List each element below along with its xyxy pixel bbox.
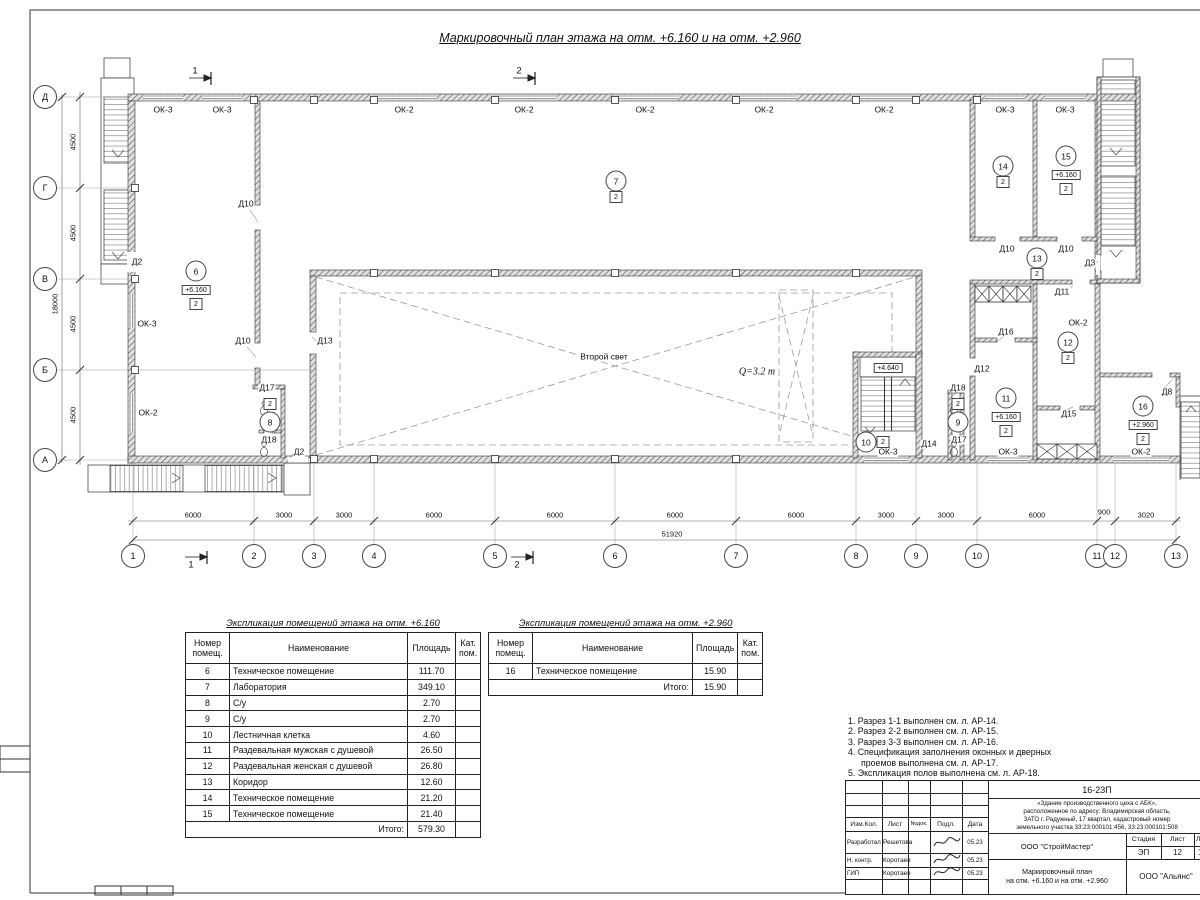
room-category: 2 <box>877 436 890 448</box>
titleblock-line <box>846 817 988 818</box>
signature <box>932 853 962 867</box>
table-cell: Техническое помещение <box>533 664 693 680</box>
table-cell: 13 <box>186 774 230 790</box>
room-number-7: 7 <box>606 171 627 192</box>
note-line: 3. Разрез 3-3 выполнен см. л. АР-16. <box>848 737 1051 747</box>
table-cell: С/у <box>230 695 408 711</box>
table-row: 16Техническое помещение15.90 <box>489 664 763 680</box>
window-label: ОК-3 <box>211 106 232 115</box>
notes-list: 1. Разрез 1-1 выполнен см. л. АР-14.2. Р… <box>848 716 1051 778</box>
dim-label: 3000 <box>938 511 955 520</box>
window-label: ОК-2 <box>393 106 414 115</box>
window-label: ОК-3 <box>994 106 1015 115</box>
dim-label: 900 <box>1098 508 1111 517</box>
note-line: проемов выполнена см. л. АР-17. <box>848 758 1051 768</box>
door-label: Д14 <box>920 440 937 449</box>
axis-number-8: 8 <box>844 544 868 568</box>
table-cell: Лестничная клетка <box>230 727 408 743</box>
table-row: 8С/у2.70 <box>186 695 481 711</box>
room-number-10: 10 <box>856 432 877 453</box>
window-label: ОК-2 <box>513 106 534 115</box>
room-category: 2 <box>1031 268 1044 280</box>
doc-number: 16-23П <box>988 781 1200 798</box>
sheet-title-line1: Маркировочный план <box>1022 868 1092 877</box>
table-row: 12Раздевальная женская с душевой26.80 <box>186 758 481 774</box>
room-schedule-6160: Экспликация помещений этажа на отм. +6.1… <box>185 618 481 838</box>
room-elevation: +6.160 <box>992 412 1021 422</box>
total-row: Итого:579.30 <box>186 821 481 837</box>
sheets-label: Листов <box>1196 833 1200 846</box>
door-label: Д17 <box>258 384 275 393</box>
titleblock-line <box>846 831 988 832</box>
table-cell: 26.80 <box>408 758 456 774</box>
section-mark: 1 <box>192 66 197 77</box>
table-cell: 2.70 <box>408 695 456 711</box>
axis-letter-Б: Б <box>33 358 57 382</box>
axis-number-3: 3 <box>302 544 326 568</box>
window-label: ОК-3 <box>152 106 173 115</box>
window-label: ОК-3 <box>1054 106 1075 115</box>
column-header: Кат. пом. <box>456 633 481 664</box>
door-label: Д10 <box>234 337 251 346</box>
table-cell <box>456 727 481 743</box>
table-row: 14Техническое помещение21.20 <box>186 790 481 806</box>
table-cell: Лаборатория <box>230 679 408 695</box>
titleblock-line <box>846 879 988 880</box>
window-label: ОК-3 <box>997 448 1018 457</box>
sheet-title-line2: на отм. +6.160 и на отм. +2.960 <box>1006 877 1108 886</box>
drawing-title: Маркировочный план этажа на отм. +6.160 … <box>439 31 801 45</box>
door-label: Д15 <box>1060 410 1077 419</box>
axis-number-9: 9 <box>904 544 928 568</box>
room-schedule-table: Номер помещ.НаименованиеПлощадьКат. пом.… <box>488 632 763 696</box>
signature <box>932 835 962 851</box>
plan-annotation: +4.640 <box>874 363 903 373</box>
titleblock-line <box>962 781 963 894</box>
table-cell <box>456 695 481 711</box>
total-row: Итого:15.90 <box>489 679 763 695</box>
axis-number-7: 7 <box>724 544 748 568</box>
sign-role: Разработал <box>847 831 882 853</box>
axis-number-2: 2 <box>242 544 266 568</box>
axis-number-13: 13 <box>1164 544 1188 568</box>
room-category: 2 <box>1060 183 1073 195</box>
axis-number-1: 1 <box>121 544 145 568</box>
door-label: Д16 <box>997 328 1014 337</box>
door-label: Д3 <box>1084 259 1096 268</box>
table-cell: 21.20 <box>408 790 456 806</box>
door-label: Д18 <box>260 436 277 445</box>
table-row: 11Раздевальная мужская с душевой26.50 <box>186 742 481 758</box>
dim-label: 4500 <box>69 407 78 424</box>
table-cell: 11 <box>186 742 230 758</box>
column-header: Площадь <box>408 633 456 664</box>
column-header: Наименование <box>533 633 693 664</box>
room-number-9: 9 <box>948 412 969 433</box>
col-list: Лист <box>882 817 908 831</box>
door-label: Д2 <box>293 448 305 457</box>
room-category: 2 <box>1062 352 1075 364</box>
table-cell: 6 <box>186 664 230 680</box>
table-cell <box>456 711 481 727</box>
dim-label: 3020 <box>1138 511 1155 520</box>
void-dashed-lines <box>316 277 915 455</box>
table-row: 9С/у2.70 <box>186 711 481 727</box>
axis-number-5: 5 <box>483 544 507 568</box>
axis-number-4: 4 <box>362 544 386 568</box>
axis-number-6: 6 <box>603 544 627 568</box>
total-label: Итого: <box>186 821 408 837</box>
door-label: Д8 <box>1161 388 1173 397</box>
titleblock-line <box>846 853 988 854</box>
table-title: Экспликация помещений этажа на отм. +2.9… <box>488 618 763 629</box>
total-value: 15.90 <box>693 679 738 695</box>
sign-date: 05.23 <box>962 831 988 853</box>
window-label: ОК-2 <box>137 409 158 418</box>
room-elevation: +2.960 <box>1129 420 1158 430</box>
column-header: Кат. пом. <box>738 633 763 664</box>
axis-letter-Г: Г <box>33 176 57 200</box>
col-data: Дата <box>962 817 988 831</box>
room-category: 2 <box>952 398 965 410</box>
sign-date: 05.23 <box>962 867 988 879</box>
axis-letter-Д: Д <box>33 85 57 109</box>
dim-label: 3000 <box>336 511 353 520</box>
object-description: «Здание производственного цеха с АБК», р… <box>988 798 1200 833</box>
column-header: Номер помещ. <box>489 633 533 664</box>
section-mark: 2 <box>514 560 519 571</box>
axis-number-12: 12 <box>1103 544 1127 568</box>
door-label: Д18 <box>949 384 966 393</box>
stage-value: ЭП <box>1126 846 1161 859</box>
room-number-8: 8 <box>260 412 281 433</box>
table-cell: Коридор <box>230 774 408 790</box>
dim-label: 6000 <box>426 511 443 520</box>
door-label: Д10 <box>998 245 1015 254</box>
dim-label: 4500 <box>69 134 78 151</box>
dim-label: 6000 <box>667 511 684 520</box>
table-cell: 9 <box>186 711 230 727</box>
room-category: 2 <box>1137 433 1150 445</box>
table-cell: С/у <box>230 711 408 727</box>
table-cell <box>456 664 481 680</box>
org-name: ООО "СтройМастер" <box>988 833 1126 859</box>
sheet-value: 12 <box>1161 846 1194 859</box>
window-label: ОК-3 <box>877 448 898 457</box>
sign-role: Н. контр. <box>847 853 882 867</box>
table-cell: 26.50 <box>408 742 456 758</box>
room-category: 2 <box>997 176 1010 188</box>
table-cell: 10 <box>186 727 230 743</box>
axis-letter-А: А <box>33 448 57 472</box>
dim-label: 3000 <box>878 511 895 520</box>
door-label: Д17 <box>950 436 967 445</box>
table-cell: Техническое помещение <box>230 806 408 822</box>
sign-name: Решетова <box>883 831 929 853</box>
door-label: Д12 <box>973 365 990 374</box>
table-cell: 349.10 <box>408 679 456 695</box>
table-cell: 14 <box>186 790 230 806</box>
room-number-11: 11 <box>996 388 1017 409</box>
window-label: ОК-2 <box>1067 319 1088 328</box>
room-elevation: +6.160 <box>182 285 211 295</box>
titleblock-line <box>1126 846 1200 847</box>
section-mark: 1 <box>188 560 193 571</box>
dim-label: 4500 <box>69 225 78 242</box>
col-podl: Подл. <box>930 817 962 831</box>
table-cell: 21.40 <box>408 806 456 822</box>
window-label: ОК-2 <box>1130 448 1151 457</box>
room-number-14: 14 <box>993 156 1014 177</box>
table-cell <box>738 664 763 680</box>
room-category: 2 <box>190 298 203 310</box>
note-line: 5. Экспликация полов выполнена см. л. АР… <box>848 768 1051 778</box>
table-cell <box>456 742 481 758</box>
table-row: 15Техническое помещение21.40 <box>186 806 481 822</box>
section-mark: 2 <box>516 66 521 77</box>
dim-label: 4500 <box>69 316 78 333</box>
sign-date: 05.23 <box>962 853 988 867</box>
table-cell <box>456 790 481 806</box>
title-block: 16-23П «Здание производственного цеха с … <box>845 780 1200 895</box>
room-schedule-table: Номер помещ.НаименованиеПлощадьКат. пом.… <box>185 632 481 838</box>
note-line: 2. Разрез 2-2 выполнен см. л. АР-15. <box>848 726 1051 736</box>
table-row: 13Коридор12.60 <box>186 774 481 790</box>
dim-label: 6000 <box>1029 511 1046 520</box>
dim-label: 6000 <box>547 511 564 520</box>
table-row: 10Лестничная клетка4.60 <box>186 727 481 743</box>
room-schedule-2960: Экспликация помещений этажа на отм. +2.9… <box>488 618 763 696</box>
stage-label: Стадия <box>1126 833 1161 846</box>
window-label: ОК-2 <box>634 106 655 115</box>
plan-annotation: Второй свет <box>579 353 629 362</box>
dim-label: 6000 <box>788 511 805 520</box>
dim-label: 6000 <box>185 511 202 520</box>
titleblock-line <box>988 833 1200 834</box>
column-header: Наименование <box>230 633 408 664</box>
col-ndoc: №док. <box>908 817 930 831</box>
total-value: 579.30 <box>408 821 456 837</box>
dim-label: 3000 <box>276 511 293 520</box>
table-cell: 12.60 <box>408 774 456 790</box>
window-label: ОК-2 <box>753 106 774 115</box>
sign-name: Коротаев <box>883 853 929 867</box>
plan-annotation: Q=3.2 т <box>739 367 775 378</box>
table-cell <box>456 679 481 695</box>
note-line: 1. Разрез 1-1 выполнен см. л. АР-14. <box>848 716 1051 726</box>
table-cell: Раздевальная мужская с душевой <box>230 742 408 758</box>
total-label: Итого: <box>489 679 693 695</box>
table-cell: Техническое помещение <box>230 664 408 680</box>
table-cell: 12 <box>186 758 230 774</box>
window-label: ОК-3 <box>136 320 157 329</box>
table-cell: 8 <box>186 695 230 711</box>
titleblock-line <box>882 781 883 894</box>
table-cell <box>738 679 763 695</box>
door-label: Д13 <box>316 337 333 346</box>
dim-total-bottom: 51920 <box>662 530 683 539</box>
room-category: 2 <box>1000 425 1013 437</box>
table-cell: Техническое помещение <box>230 790 408 806</box>
titleblock-line <box>988 798 1200 799</box>
room-number-15: 15 <box>1056 146 1077 167</box>
table-cell: 16 <box>489 664 533 680</box>
room-category: 2 <box>610 191 623 203</box>
door-label: Д10 <box>237 200 254 209</box>
table-cell: 7 <box>186 679 230 695</box>
walls <box>128 77 1180 463</box>
titleblock-line <box>988 859 1200 860</box>
note-line: 4. Спецификация заполнения оконных и две… <box>848 747 1051 757</box>
table-cell: 15 <box>186 806 230 822</box>
table-row: 7Лаборатория349.10 <box>186 679 481 695</box>
titleblock-line <box>908 781 909 894</box>
org2-name: ООО "Альянс" <box>1126 859 1200 894</box>
door-label: Д2 <box>131 258 143 267</box>
sign-name: Коротаев <box>883 867 929 879</box>
window-label: ОК-2 <box>873 106 894 115</box>
titleblock-line <box>930 781 931 894</box>
table-cell <box>456 821 481 837</box>
titleblock-line <box>846 867 988 868</box>
room-number-16: 16 <box>1133 396 1154 417</box>
door-label: Д11 <box>1054 288 1071 297</box>
table-title: Экспликация помещений этажа на отм. +6.1… <box>185 618 481 629</box>
room-number-6: 6 <box>186 261 207 282</box>
titleblock-line <box>846 805 988 806</box>
col-izm: Изм.Кол. <box>846 817 882 831</box>
table-cell <box>456 758 481 774</box>
table-cell: Раздевальная женская с душевой <box>230 758 408 774</box>
axis-number-10: 10 <box>965 544 989 568</box>
signature <box>932 866 962 879</box>
room-elevation: +6.160 <box>1052 170 1081 180</box>
titleblock-line <box>1126 833 1127 894</box>
table-cell: 4.60 <box>408 727 456 743</box>
table-cell: 2.70 <box>408 711 456 727</box>
table-cell <box>456 806 481 822</box>
sign-role: ГИП <box>847 867 882 879</box>
sheet-label: Лист <box>1161 833 1194 846</box>
table-row: 6Техническое помещение111.70 <box>186 664 481 680</box>
room-number-12: 12 <box>1058 332 1079 353</box>
room-category: 2 <box>264 398 277 410</box>
column-header: Номер помещ. <box>186 633 230 664</box>
table-cell: 111.70 <box>408 664 456 680</box>
dim-total-left: 18000 <box>51 294 60 315</box>
column-header: Площадь <box>693 633 738 664</box>
room-number-13: 13 <box>1027 248 1048 269</box>
titleblock-line <box>846 793 988 794</box>
door-label: Д10 <box>1057 245 1074 254</box>
table-cell <box>456 774 481 790</box>
axis-letter-В: В <box>33 267 57 291</box>
table-cell: 15.90 <box>693 664 738 680</box>
